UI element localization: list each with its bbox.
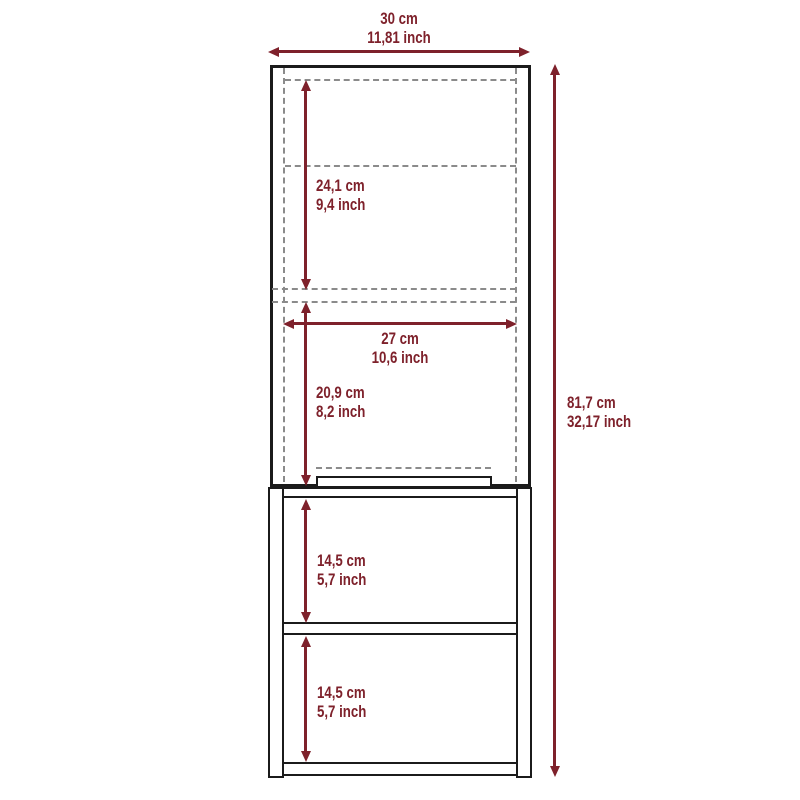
dimension-value-cm: 30 cm (297, 9, 501, 28)
arrowhead-down-icon (301, 279, 311, 290)
dimension-line (304, 507, 307, 615)
dimension-value-cm: 27 cm (309, 329, 492, 348)
dimension-value-inch: 10,6 inch (309, 348, 492, 367)
dimension-value-inch: 8,2 inch (316, 402, 365, 421)
dimension-value-cm: 14,5 cm (317, 683, 366, 702)
hidden-edge-left-line (283, 68, 285, 482)
arrowhead-down-icon (301, 612, 311, 623)
dimension-line (291, 322, 509, 325)
dimension-value-cm: 81,7 cm (567, 393, 631, 412)
hidden-edge-top-line (285, 79, 516, 81)
arrowhead-right-icon (506, 319, 517, 329)
dimension-value-inch: 5,7 inch (317, 702, 366, 721)
dimension-value-inch: 32,17 inch (567, 412, 631, 431)
dimension-label-middle-inner-height: 20,9 cm 8,2 inch (316, 383, 365, 421)
dimension-arrow-overall-height (549, 64, 560, 777)
dimension-label-lower-shelf-1: 14,5 cm 5,7 inch (317, 551, 366, 589)
dimension-arrow-middle-inner-width (283, 318, 517, 329)
dimension-label-upper-inner-height: 24,1 cm 9,4 inch (316, 176, 365, 214)
dimension-label-lower-shelf-2: 14,5 cm 5,7 inch (317, 683, 366, 721)
lower-unit-top-panel (282, 487, 518, 498)
dimension-line (304, 310, 307, 478)
hidden-edge-right-line (515, 68, 517, 482)
dimension-arrow-lower-shelf-2 (300, 636, 311, 762)
dimension-arrow-middle-inner-height (300, 302, 311, 486)
dimension-label-overall-width: 30 cm 11,81 inch (297, 9, 501, 47)
dimension-arrow-lower-shelf-1 (300, 499, 311, 623)
arrowhead-down-icon (301, 475, 311, 486)
dimension-value-inch: 5,7 inch (317, 570, 366, 589)
dimension-line (304, 88, 307, 282)
lower-unit-right-leg (516, 487, 532, 778)
dimension-value-cm: 14,5 cm (317, 551, 366, 570)
dimension-value-inch: 11,81 inch (297, 28, 501, 47)
arrowhead-down-icon (550, 766, 560, 777)
dimension-value-inch: 9,4 inch (316, 195, 365, 214)
lower-unit-middle-shelf (282, 622, 518, 635)
arrowhead-right-icon (519, 47, 530, 57)
dimension-label-middle-inner-width: 27 cm 10,6 inch (309, 329, 492, 367)
dimension-line (553, 72, 556, 769)
dimension-arrow-upper-inner-height (300, 80, 311, 290)
hidden-lip-edge-line (316, 467, 491, 469)
lower-unit-bottom-panel (282, 762, 518, 776)
hidden-interior-shelf-line (285, 165, 516, 167)
dimension-label-overall-height: 81,7 cm 32,17 inch (567, 393, 631, 431)
arrowhead-down-icon (301, 751, 311, 762)
product-dimension-diagram: 30 cm 11,81 inch 81,7 cm 32,17 inch 24,1… (0, 0, 800, 800)
dimension-arrow-overall-width (268, 46, 530, 57)
dimension-line (304, 644, 307, 754)
dimension-value-cm: 20,9 cm (316, 383, 365, 402)
dimension-value-cm: 24,1 cm (316, 176, 365, 195)
dimension-line (276, 50, 522, 53)
